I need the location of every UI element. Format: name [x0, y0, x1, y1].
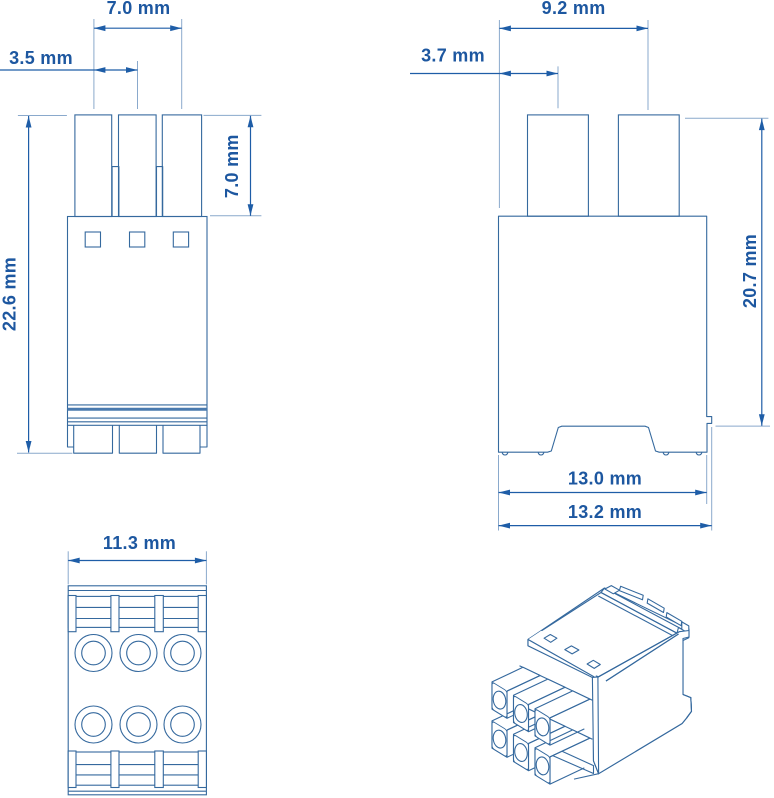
- svg-text:3.5 mm: 3.5 mm: [9, 48, 73, 68]
- svg-text:7.0 mm: 7.0 mm: [107, 0, 171, 18]
- svg-text:20.7 mm: 20.7 mm: [740, 234, 760, 308]
- svg-text:7.0 mm: 7.0 mm: [222, 134, 242, 198]
- svg-text:22.6 mm: 22.6 mm: [0, 257, 20, 331]
- svg-text:11.3 mm: 11.3 mm: [103, 533, 176, 553]
- svg-text:13.2 mm: 13.2 mm: [568, 502, 642, 522]
- svg-text:13.0 mm: 13.0 mm: [568, 469, 642, 489]
- svg-text:3.7 mm: 3.7 mm: [421, 45, 485, 65]
- svg-text:9.2 mm: 9.2 mm: [542, 0, 606, 18]
